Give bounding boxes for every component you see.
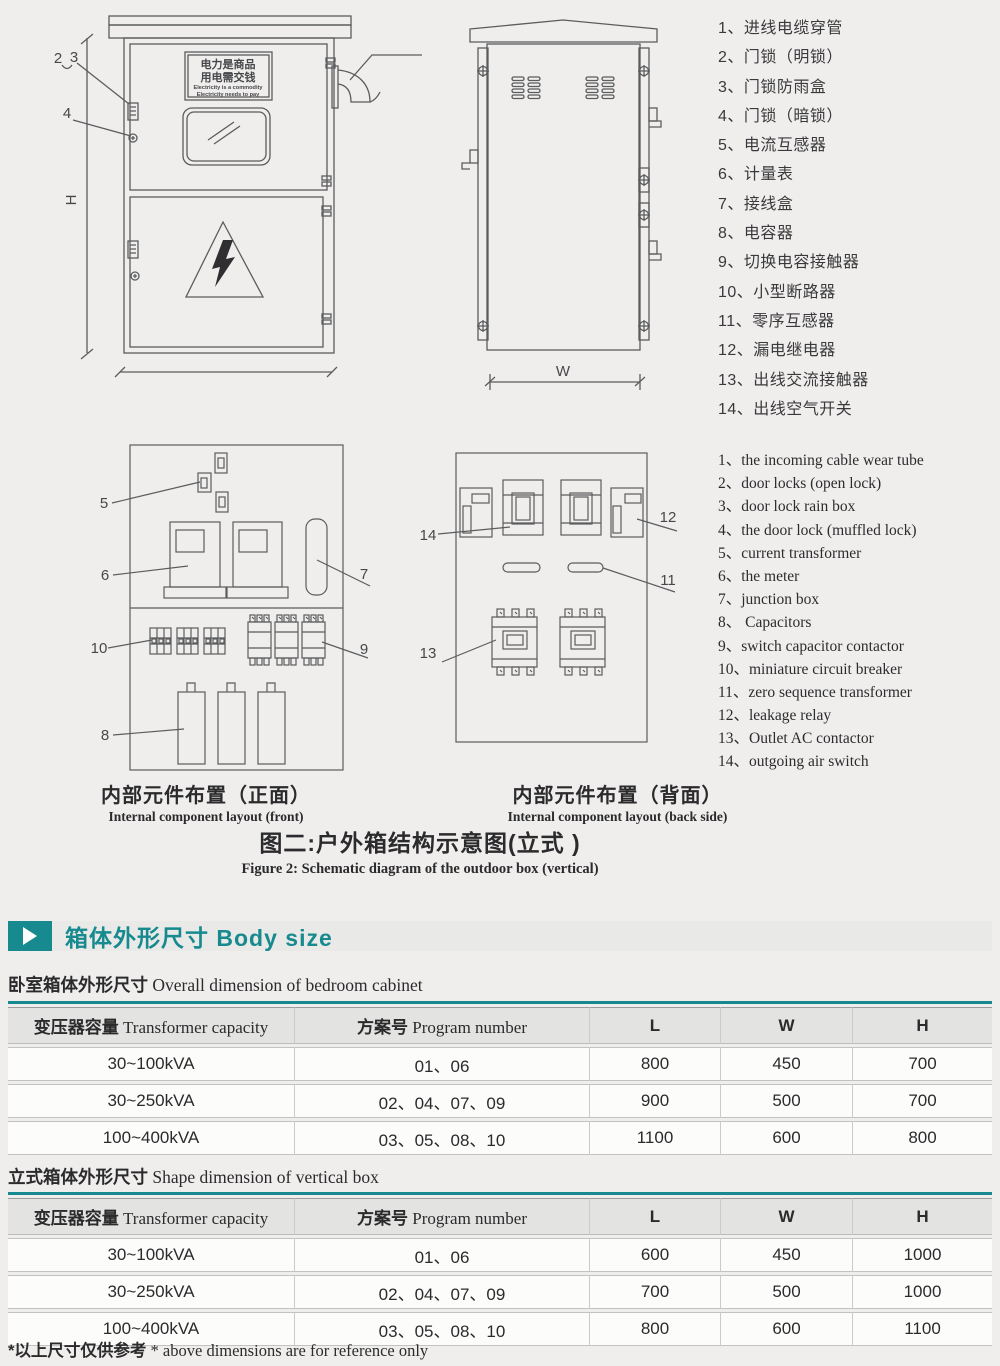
legend-item-en: 4、the door lock (muffled lock) bbox=[718, 519, 924, 542]
table1-subtitle-cn: 卧室箱体外形尺寸 bbox=[8, 975, 148, 995]
table2-subtitle-cn: 立式箱体外形尺寸 bbox=[8, 1167, 148, 1187]
cell-capacity: 30~250kVA bbox=[8, 1275, 295, 1309]
cell-capacity: 30~100kVA bbox=[8, 1047, 295, 1081]
column-header: H bbox=[853, 1198, 992, 1235]
callout-7-label: 7 bbox=[360, 566, 368, 583]
legend-item-cn: 14、出线空气开关 bbox=[718, 395, 869, 424]
cell-l: 800 bbox=[590, 1312, 721, 1346]
capacitors bbox=[178, 683, 285, 764]
legend-item-en: 11、zero sequence transformer bbox=[718, 681, 924, 704]
table2-header-row: 变压器容量 Transformer capacity方案号 Program nu… bbox=[8, 1198, 992, 1235]
cell-w: 600 bbox=[721, 1312, 853, 1346]
vent-louvers bbox=[512, 77, 614, 99]
footnote: *以上尺寸仅供参考 * above dimensions are for ref… bbox=[8, 1337, 428, 1361]
back-view-diagram: W bbox=[440, 8, 700, 408]
danger-triangle-icon bbox=[186, 222, 263, 297]
column-header: W bbox=[721, 1007, 853, 1044]
cell-h: 1100 bbox=[853, 1312, 992, 1346]
width-dimension-line bbox=[115, 367, 337, 377]
callout-11-label: 11 bbox=[660, 572, 676, 589]
internal-layout-front-diagram: 5 6 10 8 7 9 bbox=[60, 432, 420, 777]
height-dimension bbox=[81, 34, 93, 359]
relay-right bbox=[611, 488, 643, 537]
figure-caption: 图二:户外箱结构示意图(立式 ) Figure 2: Schematic dia… bbox=[150, 824, 690, 878]
door-lock-hidden-lower bbox=[131, 272, 139, 280]
play-arrow-icon bbox=[23, 927, 37, 945]
legend-item-cn: 5、电流互感器 bbox=[718, 131, 869, 160]
column-header: W bbox=[721, 1198, 853, 1235]
cable-duct-leader bbox=[350, 55, 422, 80]
cell-h: 1000 bbox=[853, 1275, 992, 1309]
cabinet-back-body bbox=[487, 44, 640, 350]
ac-contactor-2 bbox=[560, 609, 605, 675]
callout-12-label: 12 bbox=[660, 509, 677, 526]
cabinet-roof bbox=[109, 16, 351, 38]
cell-h: 700 bbox=[853, 1084, 992, 1118]
bedroom-cabinet-dimension-table: 变压器容量 Transformer capacity方案号 Program nu… bbox=[8, 1001, 992, 1158]
legend-chinese: 1、进线电缆穿管2、门锁（明锁）3、门锁防雨盒4、门锁（暗锁）5、电流互感器6、… bbox=[718, 14, 869, 424]
catalog-page: 2 3 4 H 电力是商品 用电需交钱 Electricity is a com… bbox=[0, 0, 1000, 1366]
callout-3-label: 3 bbox=[70, 49, 78, 66]
callout-6-label: 6 bbox=[101, 567, 109, 584]
legend-item-en: 7、junction box bbox=[718, 588, 924, 611]
cell-w: 500 bbox=[721, 1084, 853, 1118]
cell-w: 450 bbox=[721, 1238, 853, 1272]
zero-sequence-slots bbox=[503, 563, 603, 572]
table2-subtitle-en: Shape dimension of vertical box bbox=[148, 1167, 379, 1187]
legend-item-en: 10、miniature circuit breaker bbox=[718, 658, 924, 681]
sign-line1-cn: 电力是商品 bbox=[201, 57, 256, 71]
section-header-band: 箱体外形尺寸 Body size bbox=[8, 921, 992, 951]
legend-item-en: 2、door locks (open lock) bbox=[718, 472, 924, 495]
legend-item-en: 1、the incoming cable wear tube bbox=[718, 449, 924, 472]
legend-item-cn: 12、漏电继电器 bbox=[718, 336, 869, 365]
legend-item-cn: 4、门锁（暗锁） bbox=[718, 102, 869, 131]
column-header: H bbox=[853, 1007, 992, 1044]
legend-item-en: 12、leakage relay bbox=[718, 704, 924, 727]
cell-h: 1000 bbox=[853, 1238, 992, 1272]
vertical-box-dimension-table: 变压器容量 Transformer capacity方案号 Program nu… bbox=[8, 1192, 992, 1349]
column-header: 方案号 Program number bbox=[295, 1198, 590, 1235]
column-header: L bbox=[590, 1198, 721, 1235]
legend-item-cn: 7、接线盒 bbox=[718, 190, 869, 219]
column-header: 变压器容量 Transformer capacity bbox=[8, 1198, 295, 1235]
cell-program: 02、04、07、09 bbox=[295, 1084, 590, 1118]
hinge-bolts bbox=[477, 65, 650, 332]
cell-capacity: 30~100kVA bbox=[8, 1238, 295, 1272]
legend-item-cn: 9、切换电容接触器 bbox=[718, 248, 869, 277]
column-header: 方案号 Program number bbox=[295, 1007, 590, 1044]
callout-14-label: 14 bbox=[420, 527, 437, 544]
capacitor-contactors bbox=[248, 615, 325, 665]
legend-item-cn: 2、门锁（明锁） bbox=[718, 43, 869, 72]
section-title: 箱体外形尺寸 Body size bbox=[65, 919, 333, 953]
internal-layout-back-diagram: 14 12 11 13 bbox=[400, 432, 730, 777]
legend-item-cn: 8、电容器 bbox=[718, 219, 869, 248]
peaked-roof bbox=[470, 20, 657, 42]
front-view-diagram: 2 3 4 H 电力是商品 用电需交钱 Electricity is a com… bbox=[30, 8, 430, 418]
callout-9-label: 9 bbox=[360, 641, 368, 658]
molded-breaker-2 bbox=[561, 480, 601, 535]
legend-item-en: 6、the meter bbox=[718, 565, 924, 588]
cell-w: 600 bbox=[721, 1121, 853, 1155]
caption-layout-front: 内部元件布置（正面） Internal component layout (fr… bbox=[86, 779, 326, 825]
table-row: 30~250kVA 02、04、07、09 700 500 1000 bbox=[8, 1275, 992, 1309]
legend-item-en: 3、door lock rain box bbox=[718, 495, 924, 518]
cell-l: 900 bbox=[590, 1084, 721, 1118]
height-dim-label: H bbox=[63, 195, 80, 206]
current-transformers bbox=[198, 453, 228, 512]
footnote-en: * above dimensions are for reference onl… bbox=[146, 1341, 428, 1360]
column-header: 变压器容量 Transformer capacity bbox=[8, 1007, 295, 1044]
callout-leaders bbox=[438, 519, 677, 662]
legend-item-en: 14、outgoing air switch bbox=[718, 750, 924, 773]
table-row: 100~400kVA 03、05、08、10 1100 600 800 bbox=[8, 1121, 992, 1155]
figure-caption-en: Figure 2: Schematic diagram of the outdo… bbox=[150, 861, 690, 878]
figure-caption-cn: 图二:户外箱结构示意图(立式 ) bbox=[150, 824, 690, 858]
legend-english: 1、the incoming cable wear tube2、door loc… bbox=[718, 449, 924, 774]
caption-layout-front-en: Internal component layout (front) bbox=[86, 809, 326, 825]
table-row: 30~250kVA 02、04、07、09 900 500 700 bbox=[8, 1084, 992, 1118]
cell-capacity: 30~250kVA bbox=[8, 1084, 295, 1118]
cell-h: 800 bbox=[853, 1121, 992, 1155]
table-row: 30~100kVA 01、06 800 450 700 bbox=[8, 1047, 992, 1081]
mini-circuit-breakers bbox=[150, 628, 225, 654]
caption-layout-front-cn: 内部元件布置（正面） bbox=[86, 779, 326, 808]
cell-l: 1100 bbox=[590, 1121, 721, 1155]
table1-header-row: 变压器容量 Transformer capacity方案号 Program nu… bbox=[8, 1007, 992, 1044]
legend-item-en: 5、current transformer bbox=[718, 542, 924, 565]
callout-13-label: 13 bbox=[420, 645, 437, 662]
width-dim-label: W bbox=[556, 363, 571, 380]
legend-item-en: 9、switch capacitor contactor bbox=[718, 635, 924, 658]
legend-item-cn: 1、进线电缆穿管 bbox=[718, 14, 869, 43]
callout-leaders bbox=[62, 63, 131, 136]
footnote-cn: *以上尺寸仅供参考 bbox=[8, 1342, 146, 1360]
cell-l: 600 bbox=[590, 1238, 721, 1272]
callout-2-label: 2 bbox=[54, 50, 62, 67]
cell-w: 500 bbox=[721, 1275, 853, 1309]
door-hinges bbox=[322, 58, 335, 324]
caption-layout-back-cn: 内部元件布置（背面） bbox=[495, 779, 740, 808]
cell-l: 800 bbox=[590, 1047, 721, 1081]
sign-line1-en: Electricity is a commodity bbox=[193, 85, 263, 91]
table-row: 30~100kVA 01、06 600 450 1000 bbox=[8, 1238, 992, 1272]
legend-item-en: 13、Outlet AC contactor bbox=[718, 727, 924, 750]
cell-capacity: 100~400kVA bbox=[8, 1121, 295, 1155]
section-header-chip bbox=[8, 921, 52, 951]
caption-layout-back-en: Internal component layout (back side) bbox=[495, 809, 740, 825]
cell-h: 700 bbox=[853, 1047, 992, 1081]
callout-5-label: 5 bbox=[100, 495, 108, 512]
table1-subtitle: 卧室箱体外形尺寸 Overall dimension of bedroom ca… bbox=[8, 972, 423, 997]
caption-layout-back: 内部元件布置（背面） Internal component layout (ba… bbox=[495, 779, 740, 825]
cell-program: 02、04、07、09 bbox=[295, 1275, 590, 1309]
latch-tabs bbox=[462, 108, 661, 260]
cell-program: 01、06 bbox=[295, 1047, 590, 1081]
legend-item-cn: 10、小型断路器 bbox=[718, 278, 869, 307]
layout-back-box bbox=[456, 453, 647, 742]
legend-item-cn: 13、出线交流接触器 bbox=[718, 366, 869, 395]
table2-subtitle: 立式箱体外形尺寸 Shape dimension of vertical box bbox=[8, 1164, 379, 1189]
legend-item-cn: 3、门锁防雨盒 bbox=[718, 73, 869, 102]
junction-box bbox=[306, 519, 327, 595]
sign-line2-cn: 用电需交钱 bbox=[201, 70, 256, 84]
legend-item-en: 8、 Capacitors bbox=[718, 611, 924, 634]
callout-8-label: 8 bbox=[101, 727, 109, 744]
callout-10-label: 10 bbox=[91, 640, 108, 657]
table1-subtitle-en: Overall dimension of bedroom cabinet bbox=[148, 975, 423, 995]
cell-program: 03、05、08、10 bbox=[295, 1121, 590, 1155]
callout-4-label: 4 bbox=[63, 105, 71, 122]
cable-duct bbox=[332, 55, 422, 108]
cell-program: 01、06 bbox=[295, 1238, 590, 1272]
legend-item-cn: 6、计量表 bbox=[718, 160, 869, 189]
meter-window bbox=[183, 108, 270, 165]
meters bbox=[164, 522, 288, 598]
cell-w: 450 bbox=[721, 1047, 853, 1081]
sign-line2-en: Electricity needs to pay bbox=[197, 92, 260, 98]
ac-contactor-1 bbox=[492, 609, 537, 675]
cell-l: 700 bbox=[590, 1275, 721, 1309]
side-rails bbox=[478, 48, 649, 340]
column-header: L bbox=[590, 1007, 721, 1044]
legend-item-cn: 11、零序互感器 bbox=[718, 307, 869, 336]
